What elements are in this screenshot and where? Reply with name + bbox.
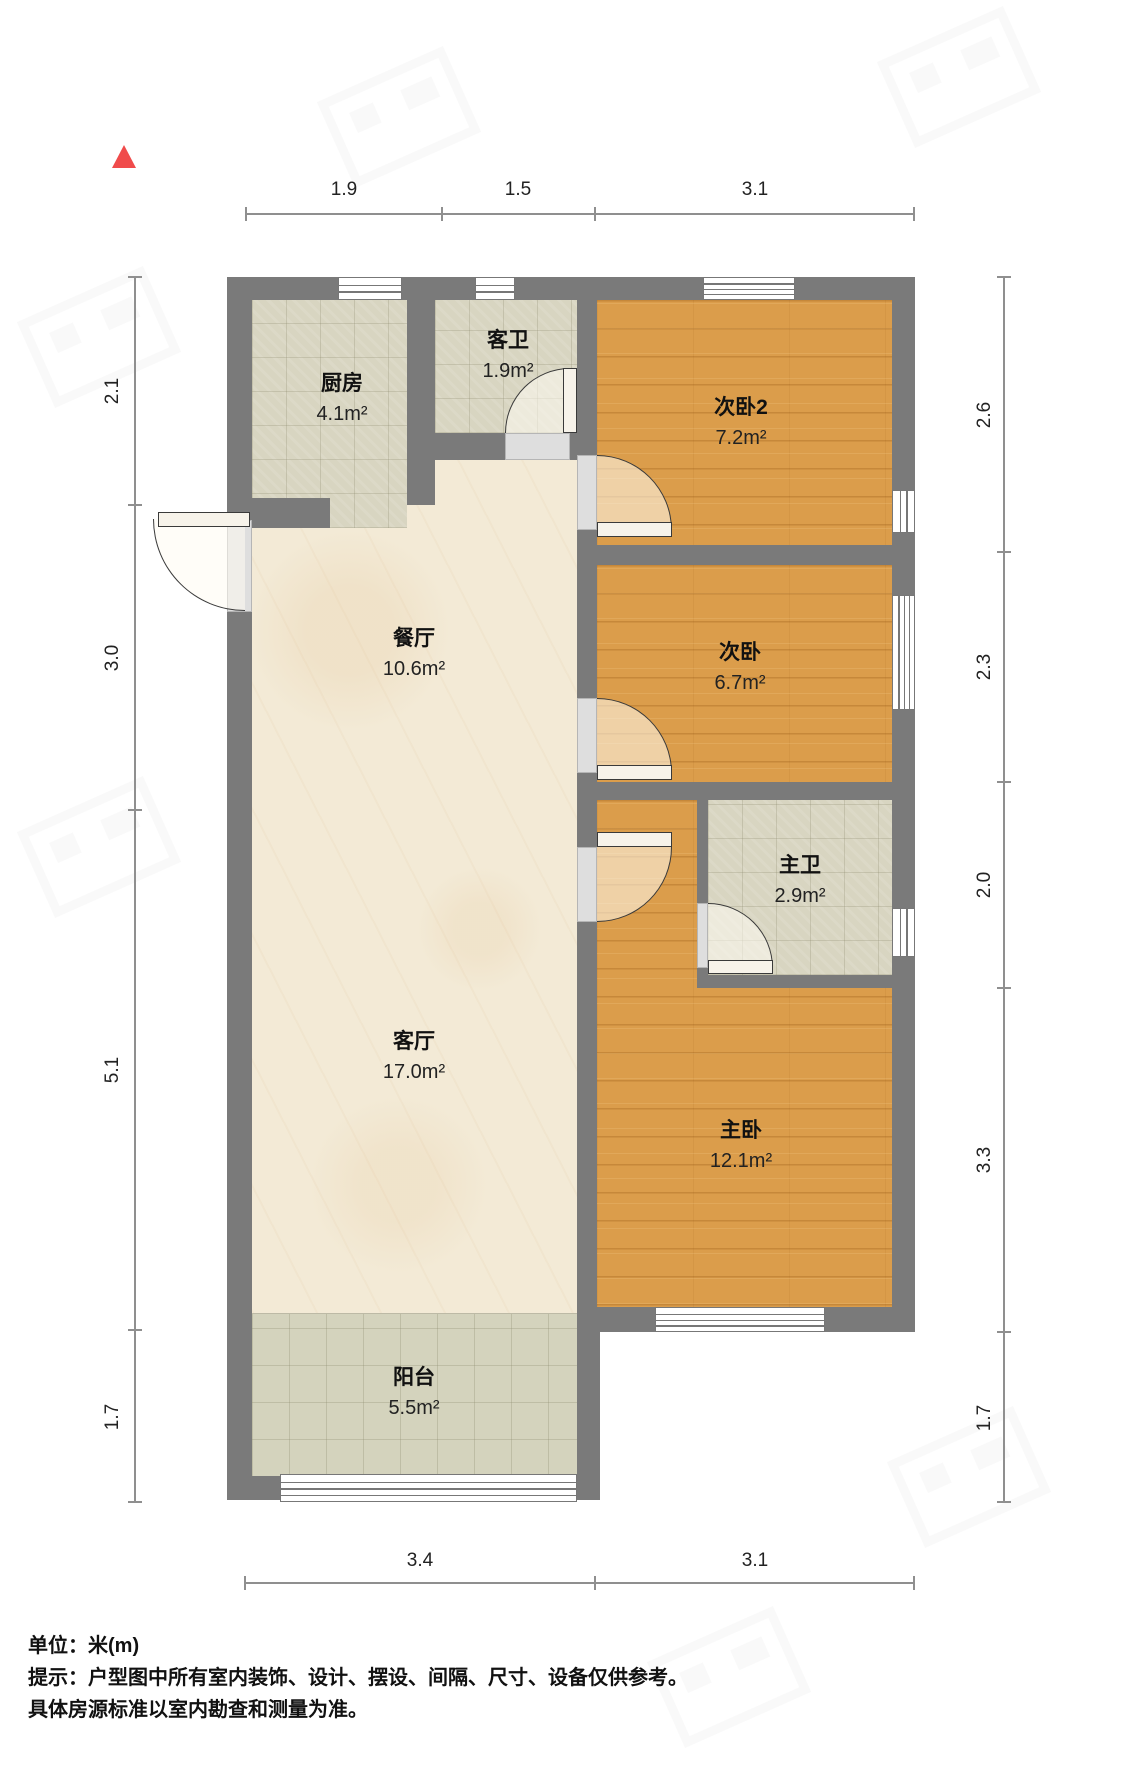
dim-label-top-1: 1.9 (331, 179, 357, 201)
master-bath-door-sill (697, 903, 708, 968)
dim-line-left (134, 277, 136, 1503)
tip-note-line1: 提示：户型图中所有室内装饰、设计、摆设、间隔、尺寸、设备仅供参考。 (28, 1662, 688, 1694)
wall-masterbath-bottom (697, 975, 892, 988)
room-label-bedroom2: 次卧27.2m² (714, 392, 768, 454)
dim-tick (997, 1501, 1011, 1503)
bedroom2-top-window (703, 277, 795, 300)
dim-tick (997, 987, 1011, 989)
dim-line-right (1003, 277, 1005, 1503)
room-label-master-bedroom: 主卧12.1m² (710, 1115, 772, 1177)
wall-hall-bedrooms (577, 300, 597, 1307)
watermark (17, 776, 181, 918)
guest-bath-window (475, 277, 515, 300)
wall-right (892, 277, 915, 1332)
watermark (17, 266, 181, 408)
north-indicator-icon (112, 145, 136, 168)
dim-label-left-2: 3.0 (102, 645, 124, 671)
master-bath-door-leaf (708, 960, 773, 974)
wall-top (227, 277, 915, 300)
dim-label-right-3: 2.0 (974, 872, 996, 898)
master-bedroom-window (655, 1307, 825, 1332)
entry-door-arc (153, 519, 245, 611)
dim-label-right-1: 2.6 (974, 402, 996, 428)
kitchen-window (338, 277, 402, 300)
dim-tick (594, 207, 596, 221)
dim-tick (128, 809, 142, 811)
room-label-living: 客厅17.0m² (383, 1026, 445, 1088)
dim-tick (441, 207, 443, 221)
notes-block: 单位：米(m) 提示：户型图中所有室内装饰、设计、摆设、间隔、尺寸、设备仅供参考… (28, 1630, 688, 1726)
room-label-master-bath: 主卫2.9m² (774, 850, 825, 912)
dim-tick (997, 551, 1011, 553)
guest-bath-door-leaf (563, 368, 577, 433)
dim-tick (245, 207, 247, 221)
wall-bedroom-master (577, 782, 892, 800)
watermark (877, 6, 1041, 148)
room-label-bedroom: 次卧6.7m² (714, 637, 765, 699)
dim-label-top-3: 3.1 (742, 179, 768, 201)
dim-tick (997, 276, 1011, 278)
entry-door-leaf (158, 512, 250, 527)
dim-label-left-1: 2.1 (102, 378, 124, 404)
room-label-kitchen: 厨房4.1m² (316, 368, 367, 430)
dim-tick (128, 276, 142, 278)
wall-kitchen-guestbath (407, 300, 435, 505)
dim-label-bottom-1: 3.4 (407, 1550, 433, 1572)
dim-tick (244, 1576, 246, 1590)
dim-tick (128, 1501, 142, 1503)
dim-label-right-5: 1.7 (974, 1405, 996, 1431)
dim-tick (128, 504, 142, 506)
master-door-leaf (597, 832, 672, 847)
dim-tick (128, 1329, 142, 1331)
wall-balcony-right (577, 1307, 600, 1500)
dim-label-right-2: 2.3 (974, 654, 996, 680)
room-label-dining: 餐厅10.6m² (383, 623, 445, 685)
dim-tick (913, 207, 915, 221)
tip-note-line2: 具体房源标准以室内勘查和测量为准。 (28, 1694, 688, 1726)
unit-note: 单位：米(m) (28, 1630, 688, 1662)
bedroom-door-sill (577, 698, 597, 773)
dim-line-top (246, 213, 915, 215)
bedroom2-right-window (892, 490, 915, 533)
dim-label-left-3: 5.1 (102, 1057, 124, 1083)
room-label-balcony: 阳台5.5m² (388, 1362, 439, 1424)
bedroom-right-window (892, 595, 915, 710)
balcony-window (280, 1474, 577, 1502)
dim-tick (997, 1331, 1011, 1333)
dim-label-right-4: 3.3 (974, 1147, 996, 1173)
dim-label-top-2: 1.5 (505, 179, 531, 201)
dim-tick (594, 1576, 596, 1590)
watermark (887, 1406, 1051, 1548)
room-label-guest-bath: 客卫1.9m² (482, 325, 533, 387)
floor-plan: 厨房4.1m² 客卫1.9m² 次卧27.2m² 次卧6.7m² 餐厅10.6m… (0, 0, 1144, 1775)
bedroom2-door-leaf (597, 522, 672, 537)
master-door-sill (577, 847, 597, 922)
dining-living-floor (252, 460, 577, 1313)
bedroom-door-leaf (597, 765, 672, 780)
watermark (317, 46, 481, 188)
wall-bedroom2-bedroom (577, 545, 892, 565)
wall-left (227, 277, 252, 1500)
dim-label-left-4: 1.7 (102, 1404, 124, 1430)
dim-line-bottom (245, 1582, 915, 1584)
master-bath-window (892, 908, 915, 957)
guest-bath-door-sill (505, 433, 570, 460)
dim-label-bottom-2: 3.1 (742, 1550, 768, 1572)
dim-tick (913, 1576, 915, 1590)
dim-tick (997, 781, 1011, 783)
bedroom2-door-sill (577, 455, 597, 530)
